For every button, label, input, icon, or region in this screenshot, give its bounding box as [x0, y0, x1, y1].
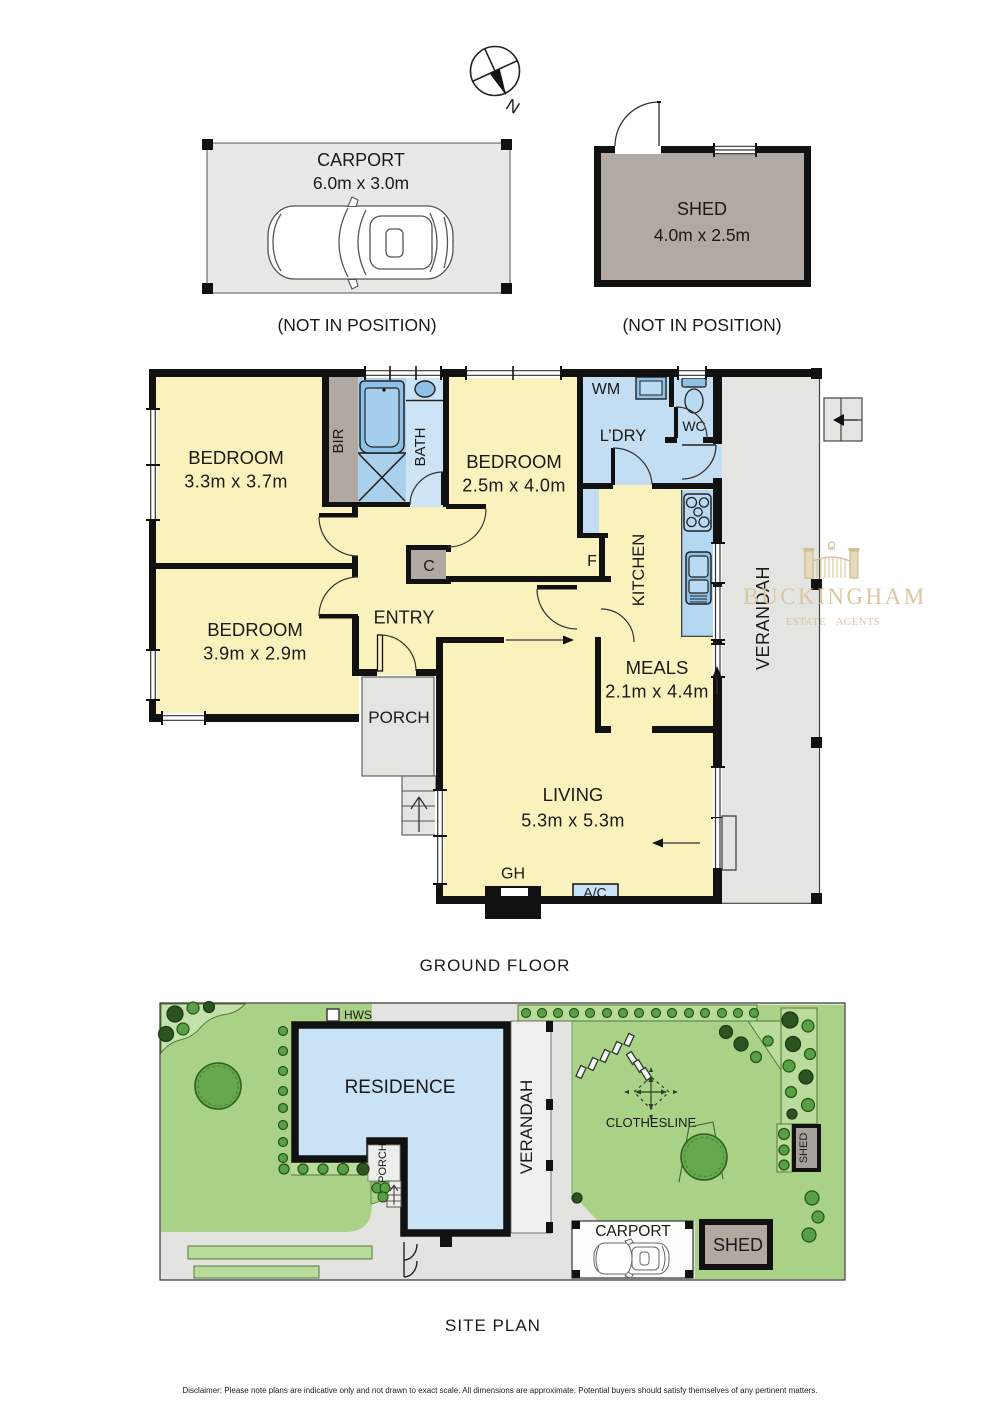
- svg-text:LIVING: LIVING: [543, 784, 604, 805]
- svg-text:6.0m x 3.0m: 6.0m x 3.0m: [313, 173, 409, 193]
- svg-text:SHED: SHED: [677, 199, 727, 219]
- svg-text:KITCHEN: KITCHEN: [630, 534, 648, 606]
- svg-text:Disclaimer: Please note plans: Disclaimer: Please note plans are indica…: [183, 1386, 818, 1395]
- svg-text:VERANDAH: VERANDAH: [753, 566, 773, 670]
- svg-text:L’DRY: L’DRY: [600, 427, 646, 445]
- svg-text:CARPORT: CARPORT: [595, 1223, 671, 1240]
- svg-text:3.9m x 2.9m: 3.9m x 2.9m: [203, 644, 306, 664]
- svg-text:(NOT IN POSITION): (NOT IN POSITION): [622, 315, 781, 335]
- svg-text:C: C: [423, 558, 435, 575]
- svg-text:AGENTS: AGENTS: [836, 617, 880, 628]
- svg-text:CLOTHESLINE: CLOTHESLINE: [606, 1115, 697, 1130]
- svg-text:3.3m x 3.7m: 3.3m x 3.7m: [184, 472, 287, 492]
- svg-text:F: F: [587, 553, 597, 570]
- svg-text:2.1m x 4.4m: 2.1m x 4.4m: [605, 682, 708, 702]
- svg-text:GH: GH: [501, 866, 525, 883]
- svg-text:ESTATE: ESTATE: [786, 617, 826, 628]
- svg-text:SHED: SHED: [713, 1235, 763, 1255]
- svg-text:BATH: BATH: [412, 428, 429, 467]
- svg-text:SHED: SHED: [798, 1133, 810, 1164]
- svg-text:RESIDENCE: RESIDENCE: [345, 1077, 456, 1098]
- svg-text:VERANDAH: VERANDAH: [517, 1080, 536, 1174]
- svg-text:WM: WM: [592, 381, 620, 398]
- svg-text:MEALS: MEALS: [626, 657, 689, 678]
- svg-text:SITE PLAN: SITE PLAN: [445, 1316, 541, 1335]
- svg-text:HWS: HWS: [344, 1008, 372, 1022]
- svg-text:BEDROOM: BEDROOM: [188, 447, 284, 468]
- svg-text:GROUND FLOOR: GROUND FLOOR: [420, 956, 571, 975]
- svg-text:4.0m x 2.5m: 4.0m x 2.5m: [654, 225, 750, 245]
- svg-text:BEDROOM: BEDROOM: [207, 619, 303, 640]
- svg-text:BIR: BIR: [330, 428, 347, 453]
- svg-text:(NOT IN POSITION): (NOT IN POSITION): [277, 315, 436, 335]
- svg-text:PORCH: PORCH: [377, 1143, 389, 1183]
- svg-text:CARPORT: CARPORT: [317, 150, 405, 170]
- svg-text:5.3m x 5.3m: 5.3m x 5.3m: [521, 811, 624, 831]
- svg-text:ENTRY: ENTRY: [374, 608, 435, 628]
- svg-text:PORCH: PORCH: [368, 708, 429, 727]
- svg-text:2.5m x 4.0m: 2.5m x 4.0m: [462, 476, 565, 496]
- svg-text:BEDROOM: BEDROOM: [466, 451, 562, 472]
- svg-text:BUCKINGHAM: BUCKINGHAM: [743, 584, 926, 609]
